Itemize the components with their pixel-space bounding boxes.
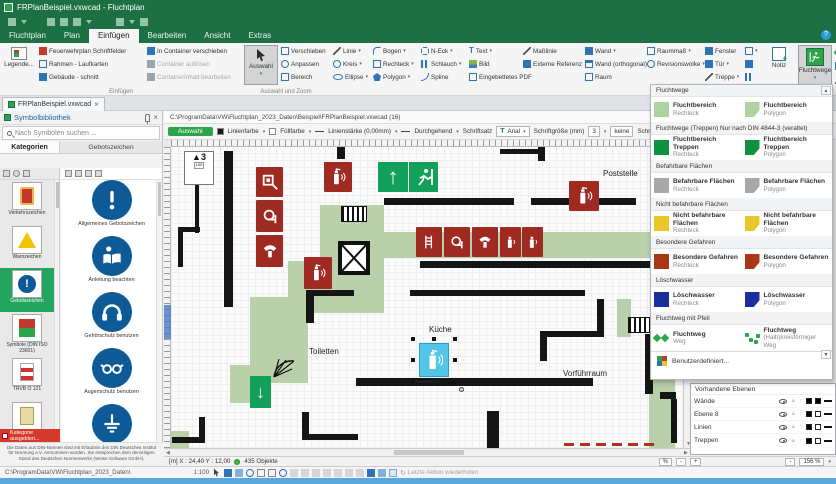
scroll-up-icon[interactable]: ▲ [821, 86, 831, 95]
tab-fluchtplan[interactable]: Fluchtplan [0, 29, 55, 43]
import-symbol-icon[interactable] [95, 170, 102, 177]
symbol-item-gehoerschutz[interactable]: Gehörschutz benutzen [61, 292, 162, 348]
rect-swatch-icon [654, 292, 669, 307]
selection-handle[interactable] [453, 358, 457, 362]
node-edit-icon[interactable] [268, 469, 276, 477]
font-select[interactable]: TArial▾ [496, 126, 529, 137]
categories-column: Verkehrszeichen Warnzeichen ! Gebotszeic… [0, 168, 60, 429]
line-width-icon [315, 131, 324, 133]
rect-swatch-icon [654, 102, 669, 117]
emergency-phone-sign[interactable] [256, 235, 283, 267]
kreis-button[interactable]: Kreis▾ [332, 58, 370, 70]
redo-icon[interactable] [140, 18, 148, 26]
symbol-item-erden[interactable]: Vor Benutzung erden [61, 404, 162, 442]
selection-handle[interactable] [453, 380, 457, 384]
lock-icon[interactable]: ▲ [790, 438, 796, 444]
ribbon-group-media: TText▾ Bild Eingebettetes PDF Maßlinie E… [466, 43, 582, 95]
tab-bearbeiten[interactable]: Bearbeiten [139, 29, 196, 43]
edit-symbol-icon[interactable] [65, 170, 72, 177]
container-aufloesen-button[interactable]: Container auflösen [146, 58, 240, 70]
ribbon-item-label: Schlauch [431, 61, 457, 68]
layer-row-ebene-8[interactable]: Ebene 8 ▲ ○ [691, 408, 835, 421]
gebaeude-schnitt-button[interactable]: Gebäude - schnitt [38, 71, 144, 83]
grid-toggle-icon[interactable] [389, 469, 397, 477]
ribbon-item-label: Container auflösen [157, 61, 210, 68]
section-tool-button[interactable] [744, 71, 758, 83]
print-icon[interactable]: ○ [799, 438, 803, 444]
notiz-button[interactable]: Notiz [762, 45, 796, 85]
linetype-sample[interactable] [824, 413, 832, 415]
verschieben-button[interactable]: Verschieben [280, 45, 328, 57]
line-color-chip[interactable] [806, 398, 812, 404]
treppe-button[interactable]: Treppe▾ [704, 71, 742, 83]
scroll-down-icon[interactable]: ▼ [821, 350, 831, 359]
tool-disabled-icon [301, 469, 309, 477]
category-icon [12, 402, 42, 429]
hatch-select[interactable]: keine [610, 126, 633, 137]
lock-icon[interactable]: ▲ [790, 424, 796, 430]
ribbon-item-label: Gebäude - schnitt [49, 74, 99, 81]
selection-handle[interactable] [453, 337, 457, 341]
scrollbar-thumb[interactable] [394, 450, 464, 455]
fill-color-chip[interactable] [815, 411, 821, 417]
tab-extras[interactable]: Extras [239, 29, 280, 43]
menu-section-header: Fluchtweg mit Pfeil [651, 313, 832, 325]
menu-item-benutzerdefiniert[interactable]: Benutzerdefiniert... [651, 351, 832, 370]
ribbon-item-label: Wand (orthogonal) [595, 61, 647, 68]
wall-ortho-icon [585, 60, 593, 68]
neck-button[interactable]: N-Eck▾ [420, 45, 464, 57]
ribbon-tab-bar: Fluchtplan Plan Einfügen Bearbeiten Ansi… [0, 28, 836, 43]
route-arc-icon [745, 331, 760, 346]
snap-grid-icon[interactable] [224, 469, 232, 477]
ribbon-item-label: Rahmen - Laufkarten [49, 61, 108, 68]
polygon-swatch-icon [745, 140, 760, 155]
auswahl-mode-button[interactable]: Auswahl [168, 127, 213, 136]
vertical-ruler [164, 147, 171, 448]
stairs-symbol[interactable] [628, 317, 652, 333]
cursor-coordinates: [m] X : 24,40 Y : 12,00 [169, 458, 230, 465]
object-count: 435 Objekte [244, 458, 277, 465]
font-size-input[interactable]: 3 [588, 126, 600, 137]
hide-category-button[interactable]: Kategorie ausgeblen... [0, 429, 60, 442]
ellipse-icon [333, 74, 343, 80]
fire-extinguisher-sign[interactable] [324, 162, 352, 192]
chevron-down-icon: ▾ [814, 75, 817, 81]
snap-object-icon[interactable] [235, 469, 243, 477]
zoom-level[interactable]: 156 % [799, 458, 824, 466]
visibility-eye-icon[interactable] [779, 438, 787, 443]
line-style-label[interactable]: Durchgehend [414, 128, 452, 135]
fluchtwege-button[interactable]: Fluchtwege ▾ [798, 45, 832, 85]
feuerwehrplan-schriftfelder-button[interactable]: Feuerwehrplan Schriftfelder [38, 45, 144, 57]
stairs-icon [705, 73, 713, 81]
symbol-search-input[interactable]: Nach Symbolen suchen ... [2, 126, 160, 140]
repeat-last-action-label: Letzte Aktion wiederholen [408, 469, 479, 476]
pdf-button[interactable]: Eingebettetes PDF [468, 71, 520, 83]
line-color-chip[interactable] [806, 411, 812, 417]
wall [597, 299, 604, 337]
fire-hose-sign[interactable] [256, 200, 283, 232]
fire-extinguisher-sign[interactable] [500, 227, 521, 257]
floor-plan[interactable]: ↑ ↓ ▲3 100 Poststelle Toiletten Küche Vo… [171, 147, 683, 448]
exit-arrow-down-sign[interactable]: ↓ [250, 376, 271, 408]
document-tab[interactable]: FRPlanBeispiel.vxwcad × [2, 97, 105, 111]
ribbon-item-label: Anpassen [291, 61, 319, 68]
category-item-gebaeudebeschilderung[interactable]: Gebäudebeschilderung [0, 400, 54, 429]
route-dots-icon [654, 335, 669, 341]
close-icon[interactable]: × [94, 101, 99, 109]
room-measure-icon [647, 47, 655, 55]
print-icon[interactable]: ○ [799, 424, 803, 430]
chevron-down-icon[interactable] [21, 20, 27, 24]
linetype-sample[interactable] [824, 400, 832, 402]
font-value: Arial [507, 128, 520, 135]
move-icon [281, 47, 289, 55]
ellipse-button[interactable]: Ellipse▾ [332, 71, 370, 83]
fill-color-chip[interactable] [269, 128, 276, 135]
ribbon-item-label: Raum [595, 74, 612, 81]
exit-arrow-up-sign[interactable]: ↑ [378, 162, 408, 192]
ribbon-item-label: Revisionswolke [657, 61, 700, 68]
symbol-label: Gehörschutz benutzen [84, 333, 138, 339]
ribbon-item-label: Ellipse [345, 74, 364, 81]
polygon-swatch-icon [745, 178, 760, 193]
door-icon [705, 60, 713, 68]
ribbon-item-label: Spline [431, 74, 449, 81]
category-item-gebotszeichen[interactable]: ! Gebotszeichen [0, 268, 54, 312]
category-icon [12, 226, 42, 254]
layer-row-linien[interactable]: Linien ▲ ○ [691, 421, 835, 434]
categories-scrollbar[interactable] [54, 180, 59, 429]
polar-mode-icon[interactable] [257, 469, 265, 477]
panel-title: Symbolbibliothek [14, 113, 142, 122]
room-icon [585, 73, 593, 81]
export-icon[interactable] [73, 18, 81, 26]
library-icon [4, 114, 11, 121]
menu-item-befahrbar-rechteck[interactable]: Befahrbare FlächenRechteck [651, 173, 742, 198]
sheet-marker-arrow: ▲3 [192, 152, 206, 162]
spline-icon [421, 73, 429, 81]
print-icon[interactable] [60, 18, 68, 26]
linetype-sample[interactable] [824, 426, 832, 428]
elevator-symbol[interactable] [338, 241, 370, 275]
menu-item-fluchtweg-weg[interactable]: FluchtwegWeg [651, 325, 742, 351]
menu-section-header: Nicht befahrbare Flächen [651, 199, 832, 211]
fill-color-chip[interactable] [815, 438, 821, 444]
menu-item-treppen-rechteck[interactable]: Fluchtbereich TreppenRechteck [651, 135, 742, 160]
menu-item-nicht-befahrbar-rechteck[interactable]: Nicht befahrbare FlächenRechteck [651, 211, 742, 236]
tool-disabled-icon [312, 469, 320, 477]
sheet-marker[interactable]: ▲3 100 [184, 151, 214, 185]
fire-extinguisher-sign[interactable] [569, 181, 599, 211]
stairs-symbol[interactable] [341, 206, 367, 222]
import-icon[interactable] [23, 170, 30, 177]
category-item-verkehrszeichen[interactable]: Verkehrszeichen [0, 180, 54, 224]
hide-category-label: Kategorie ausgeblen... [10, 430, 58, 442]
wall [224, 151, 233, 307]
font-size-label: Schriftgröße (mm) [534, 128, 585, 135]
beam-tool-button[interactable] [744, 58, 758, 70]
legend-icon [11, 47, 27, 60]
polygon-swatch-icon [745, 216, 760, 231]
symbol-library-panel: Symbolbibliothek × Nach Symbolen suchen … [0, 111, 163, 466]
polygon-icon [373, 73, 381, 81]
undo-icon[interactable] [116, 18, 124, 26]
wall [540, 331, 602, 337]
wand-orthogonal-button[interactable]: Wand (orthogonal) [584, 58, 644, 70]
raummass-button[interactable]: Raummaß▾ [646, 45, 702, 57]
polygon-button[interactable]: Polygon▾ [372, 71, 418, 83]
line-color-chip[interactable] [217, 128, 224, 135]
symbol-item-allgemeines-gebotszeichen[interactable]: Allgemeines Gebotszeichen [61, 180, 162, 236]
line-color-chip[interactable] [806, 424, 812, 430]
category-icon [12, 314, 42, 342]
layer-tool-icon[interactable] [367, 469, 375, 477]
column-headers: Kategorien Gebotszeichen [0, 141, 162, 154]
wall-icon [585, 47, 593, 55]
tab-plan[interactable]: Plan [55, 29, 89, 43]
pin-icon[interactable] [145, 114, 150, 122]
legende-label: Legende... [4, 61, 34, 68]
category-label: Verkehrszeichen [9, 211, 46, 217]
rect-swatch-icon [654, 178, 669, 193]
hide-icon [2, 433, 8, 439]
osnap-icon[interactable] [279, 469, 287, 477]
font-label: Schriftsatz [463, 128, 492, 135]
ribbon-item-label: Tür [715, 61, 724, 68]
search-placeholder: Nach Symbolen suchen ... [15, 130, 97, 137]
sheet-marker-scale: 100 [194, 162, 205, 169]
read-instructions-icon [92, 236, 132, 276]
building-icon [39, 73, 47, 81]
wall [384, 198, 514, 205]
layers-header: Vorhandene Ebenen [691, 384, 835, 395]
externe-referenz-button[interactable]: Externe Referenz [522, 58, 580, 70]
bild-button[interactable]: Bild [468, 58, 520, 70]
container-edit-icon [147, 73, 155, 81]
legende-button[interactable]: Legende... [2, 45, 36, 85]
menu-item-fluchtbereich-rechteck[interactable]: FluchtbereichRechteck [651, 97, 742, 122]
linie-button[interactable]: Linie▾ [332, 45, 370, 57]
category-item-warnzeichen[interactable]: Warnzeichen [0, 224, 54, 268]
tool-disabled-icon [290, 469, 298, 477]
containerinhalt-bearbeiten-button[interactable]: Containerinhalt bearbeiten [146, 71, 240, 83]
zoom-minus-button[interactable]: - [785, 458, 795, 466]
bogen-button[interactable]: Bogen▾ [372, 45, 418, 57]
anpassen-button[interactable]: Anpassen [280, 58, 328, 70]
bereich-button[interactable]: Bereich [280, 71, 328, 83]
wall [178, 227, 183, 267]
room-label-poststelle: Poststelle [603, 169, 638, 178]
section-icon [745, 73, 753, 81]
zoom-in-button[interactable]: + [690, 458, 702, 466]
schlauch-button[interactable]: Schlauch▾ [420, 58, 464, 70]
print-icon[interactable]: ○ [799, 398, 803, 404]
notiz-label: Notiz [772, 62, 786, 69]
fit-icon [281, 60, 289, 68]
spiral-stairs-symbol[interactable] [272, 357, 296, 379]
export-symbol-icon[interactable] [85, 170, 92, 177]
save-icon[interactable] [8, 18, 16, 26]
fire-ladder-sign[interactable] [416, 227, 442, 257]
menu-item-loeschwasser-rechteck[interactable]: LöschwasserRechteck [651, 287, 742, 312]
horizontal-scrollbar[interactable]: ◀▶ [164, 448, 692, 456]
linetype-sample[interactable] [824, 440, 832, 442]
column-tool-button[interactable]: ▾ [744, 45, 758, 57]
text-icon: T [469, 47, 474, 55]
fill-color-label[interactable]: Füllfarbe [280, 128, 305, 135]
menu-section-header: Fluchtwege [651, 85, 832, 97]
zoom-out-button[interactable]: - [676, 458, 686, 466]
ribbon-item-label: Bild [479, 61, 490, 68]
data-path: C:\ProgramData\VW\Fluchtplan_2023_Daten\ [5, 469, 131, 476]
emergency-exit-sign[interactable] [409, 162, 438, 192]
layer-name: Linien [694, 424, 776, 431]
tab-einfuegen[interactable]: Einfügen [89, 29, 139, 43]
tab-ansicht[interactable]: Ansicht [195, 29, 239, 43]
pdf-icon [469, 73, 477, 81]
fire-hose-sign[interactable] [444, 227, 470, 257]
categories-toolbar [0, 168, 59, 180]
layer-row-waende[interactable]: Wände ▲ ○ [691, 395, 835, 408]
ribbon-item-label: Treppe [715, 74, 735, 81]
ortho-mode-icon[interactable] [246, 469, 254, 477]
print-area-icon[interactable] [378, 469, 386, 477]
menu-item-fluchtweg-halbkreis[interactable]: Fluchtweg(Halb)kreisförmiger Weg [742, 325, 833, 351]
wand-button[interactable]: Wand▾ [584, 45, 644, 57]
line-icon [333, 47, 341, 55]
layer-name: Wände [694, 398, 776, 405]
arc-icon [373, 47, 381, 55]
category-label: Symbole (DIN ISO 23601) [0, 343, 54, 354]
menu-section-header: Fluchtwege (Treppen) Nur nach DIN 4844-3… [651, 123, 832, 135]
menu-item-gefahren-polygon[interactable]: Besondere GefahrenPolygon [742, 249, 833, 274]
dimension-icon [523, 47, 531, 55]
fill-color-chip[interactable] [815, 398, 821, 404]
menu-item-treppen-polygon[interactable]: Fluchtbereich TreppenPolygon [742, 135, 833, 160]
symbol-label: Augenschutz benutzen [84, 389, 139, 395]
selection-handle[interactable] [411, 358, 415, 362]
menu-section-header: Besondere Gefahren [651, 237, 832, 249]
tool-disabled-icon [345, 469, 353, 477]
category-icon: ! [12, 270, 42, 298]
selected-fire-extinguisher-symbol[interactable] [419, 343, 449, 377]
repeat-last-action-button[interactable]: ↻Letzte Aktion wiederholen [400, 469, 478, 477]
selection-handle[interactable] [411, 337, 415, 341]
ribbon-item-label: Polygon [383, 74, 406, 81]
visibility-eye-icon[interactable] [779, 412, 787, 417]
room-label-toiletten: Toiletten [309, 347, 339, 356]
new-symbol-icon[interactable] [75, 170, 82, 177]
polygon-swatch-icon [745, 102, 760, 117]
rechteck-button[interactable]: Rechteck▾ [372, 58, 418, 70]
masslinie-button[interactable]: Maßlinie [522, 45, 580, 57]
menu-item-loeschwasser-polygon[interactable]: LöschwasserPolygon [742, 287, 833, 312]
wall [671, 399, 677, 443]
category-label: Warnzeichen [13, 255, 42, 261]
categories-header: Kategorien [0, 141, 60, 153]
lock-icon[interactable]: ▲ [790, 411, 796, 417]
symbols-scrollbar[interactable] [156, 180, 162, 442]
ribbon-item-label: Externe Referenz [533, 61, 582, 68]
symbol-item-anleitung-beachten[interactable]: Anleitung beachten [61, 236, 162, 292]
cursor-mode-icon[interactable] [212, 468, 221, 477]
document-icon [8, 101, 15, 108]
menu-item-befahrbar-polygon[interactable]: Befahrbare FlächenPolygon [742, 173, 833, 198]
ribbon-item-label: Maßlinie [533, 48, 557, 55]
layer-row-treppen[interactable]: Treppen ▲ ○ [691, 434, 835, 447]
add-category-icon[interactable] [13, 170, 20, 177]
chevron-down-icon[interactable] [129, 20, 135, 24]
close-icon[interactable]: × [153, 114, 158, 122]
fire-extinguisher-sign[interactable] [522, 227, 543, 257]
layers-panel: Vorhandene Ebenen Wände ▲ ○ Ebene 8 ▲ ○ … [690, 383, 836, 455]
marked-wall-dashed [564, 443, 656, 446]
menu-item-nicht-befahrbar-polygon[interactable]: Nicht befahrbare FlächenPolygon [742, 211, 833, 236]
spline-button[interactable]: Spline [420, 71, 464, 83]
chevron-down-icon[interactable] [86, 20, 92, 24]
selection-handle[interactable] [432, 337, 436, 341]
text-button[interactable]: TText▾ [468, 45, 520, 57]
emergency-phone-sign[interactable] [472, 227, 498, 257]
ground-before-use-icon [92, 404, 132, 442]
ribbon-item-label: Verschieben [291, 48, 326, 55]
menu-item-fluchtbereich-polygon[interactable]: FluchtbereichPolygon [742, 97, 833, 122]
chevron-down-icon[interactable]: ▾ [828, 459, 831, 465]
visibility-eye-icon[interactable] [779, 425, 787, 430]
revisionswolke-button[interactable]: Revisionswolke▾ [646, 58, 702, 70]
fluchtwege-label: Fluchtwege [799, 67, 831, 74]
line-color-chip[interactable] [806, 438, 812, 444]
xref-icon [523, 60, 531, 68]
in-container-verschieben-button[interactable]: In Container verschieben [146, 45, 240, 57]
escape-route-icon [806, 48, 824, 66]
wall [306, 295, 314, 323]
open-icon[interactable] [47, 18, 55, 26]
tuer-button[interactable]: Tür▾ [704, 58, 742, 70]
percent-button[interactable]: % [659, 458, 672, 466]
raum-button[interactable]: Raum [584, 71, 644, 83]
menu-item-gefahren-rechteck[interactable]: Besondere GefahrenRechteck [651, 249, 742, 274]
line-color-label[interactable]: Linienfarbe [228, 128, 259, 135]
fire-extinguisher-sign[interactable] [304, 257, 332, 289]
print-icon[interactable]: ○ [799, 411, 803, 417]
help-icon[interactable]: ? [821, 30, 831, 40]
category-item-trvb-o-121[interactable]: TRVB O 121 [0, 356, 54, 400]
beam-icon [745, 60, 753, 68]
settings-icon[interactable] [3, 170, 10, 177]
category-item-din-iso-23601[interactable]: Symbole (DIN ISO 23601) [0, 312, 54, 356]
escape-route [230, 365, 252, 403]
symbol-item-augenschutz[interactable]: Augenschutz benutzen [61, 348, 162, 404]
lock-icon[interactable]: ▲ [790, 398, 796, 404]
document-tab-label: FRPlanBeispiel.vxwcad [18, 101, 91, 108]
symbols-column: Allgemeines Gebotszeichen Anleitung beac… [61, 168, 162, 442]
visibility-eye-icon[interactable] [779, 399, 787, 404]
fill-color-chip[interactable] [815, 424, 821, 430]
status-ok-icon [234, 459, 240, 465]
auswahl-button[interactable]: Auswahl ▾ [244, 45, 278, 85]
ribbon-item-label: Containerinhalt bearbeiten [157, 74, 231, 81]
rahmen-laufkarten-button[interactable]: Rahmen - Laufkarten [38, 58, 144, 70]
fire-call-point-sign[interactable] [256, 167, 283, 197]
polygon-swatch-icon [745, 254, 760, 269]
fenster-button[interactable]: Fenster [704, 45, 742, 57]
rotate-handle-icon[interactable] [459, 387, 464, 392]
tool-disabled-icon [334, 469, 342, 477]
line-width-label[interactable]: Linienstärke (0,00mm) [328, 128, 391, 135]
